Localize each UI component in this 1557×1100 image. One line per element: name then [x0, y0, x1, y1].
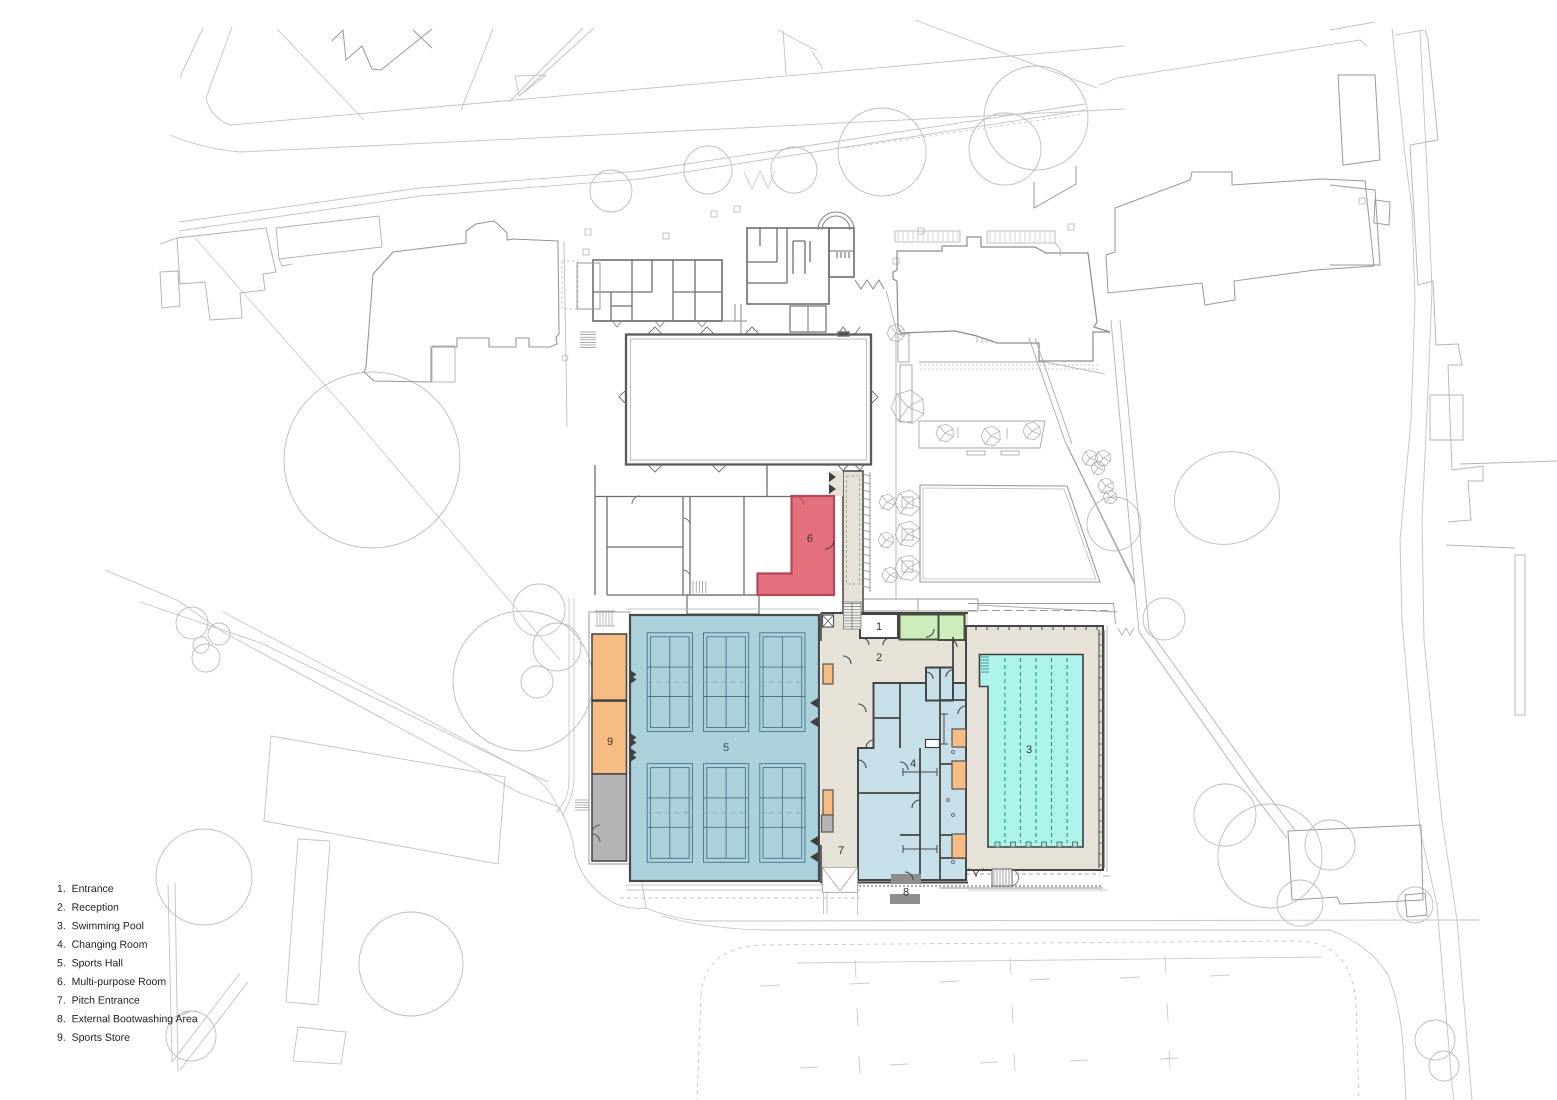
- svg-text:8. External Bootwashing Area: 8. External Bootwashing Area: [57, 1013, 198, 1025]
- svg-text:3. Swimming Pool: 3. Swimming Pool: [57, 920, 144, 932]
- svg-text:5. Sports Hall: 5. Sports Hall: [57, 957, 123, 969]
- svg-text:6: 6: [807, 533, 813, 545]
- svg-text:4. Changing Room: 4. Changing Room: [57, 939, 148, 951]
- svg-text:1. Entrance: 1. Entrance: [57, 883, 114, 895]
- svg-text:1: 1: [876, 621, 882, 633]
- svg-text:2. Reception: 2. Reception: [57, 902, 119, 914]
- svg-text:8: 8: [903, 886, 909, 898]
- svg-text:7: 7: [838, 845, 844, 857]
- svg-text:5: 5: [723, 742, 729, 754]
- svg-text:7. Pitch Entrance: 7. Pitch Entrance: [57, 995, 140, 1007]
- svg-text:9. Sports Store: 9. Sports Store: [57, 1032, 130, 1044]
- svg-text:9: 9: [607, 736, 613, 748]
- svg-text:2: 2: [876, 652, 882, 664]
- svg-text:3: 3: [1026, 744, 1032, 756]
- svg-text:6. Multi-purpose Room: 6. Multi-purpose Room: [57, 976, 166, 988]
- svg-text:4: 4: [910, 758, 916, 770]
